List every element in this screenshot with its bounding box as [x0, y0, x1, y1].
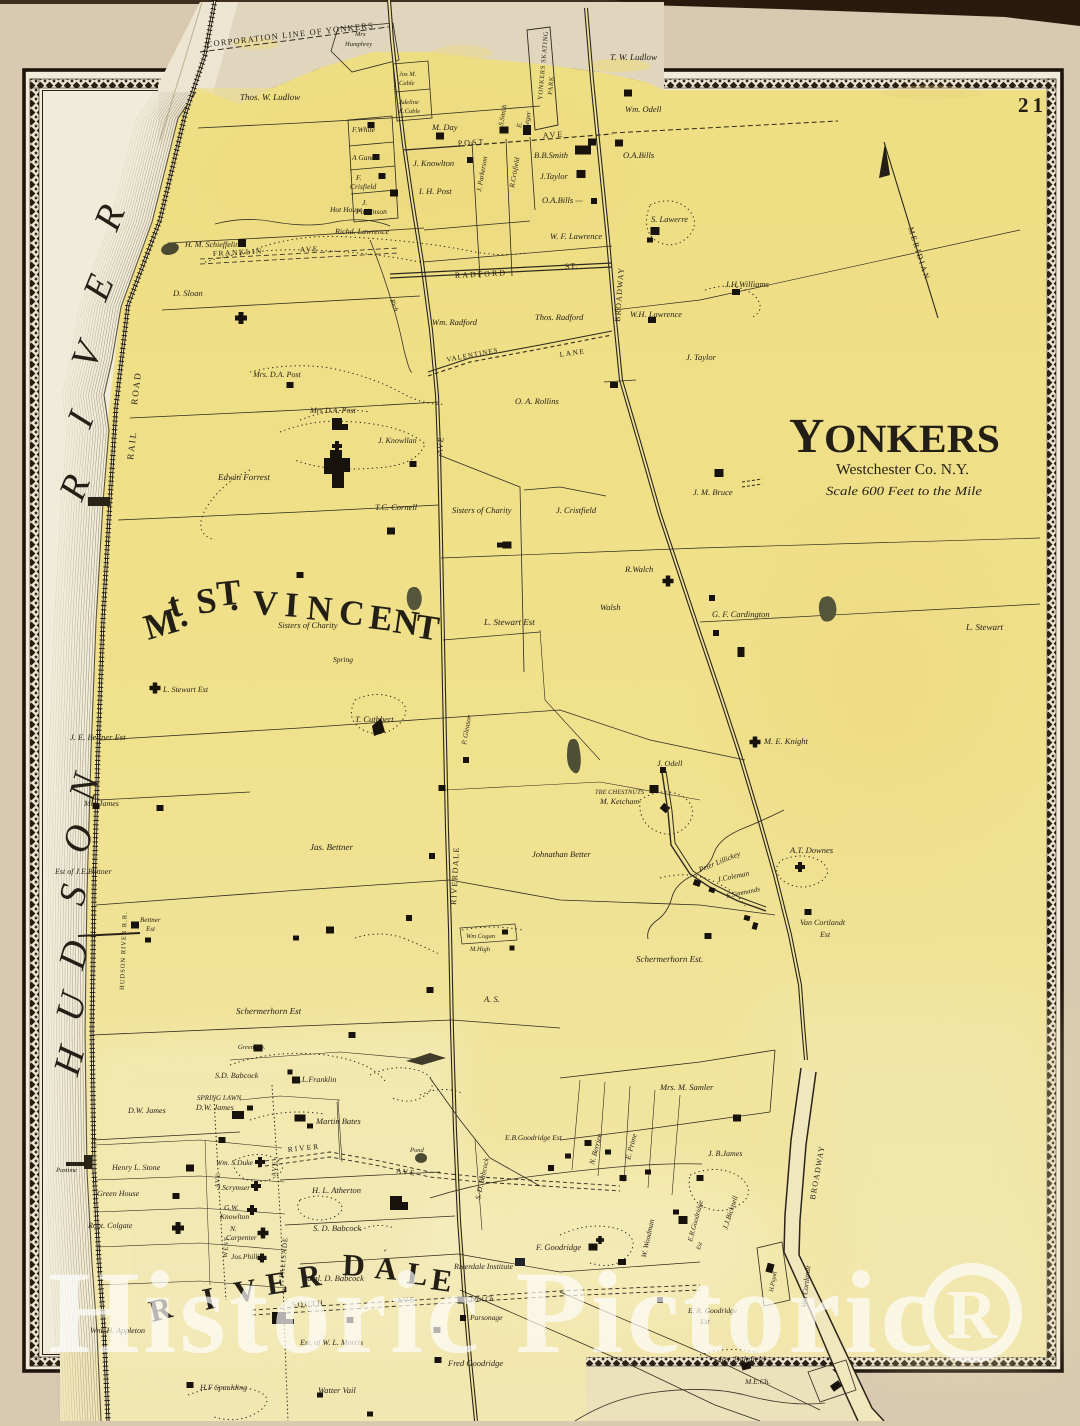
- svg-text:E: E: [367, 597, 395, 639]
- svg-text:Henry L. Stone: Henry L. Stone: [111, 1163, 161, 1172]
- svg-text:Adeline: Adeline: [398, 99, 419, 106]
- svg-text:Mrs. D.A. Post: Mrs. D.A. Post: [252, 370, 302, 379]
- svg-text:M.E.Ch.: M.E.Ch.: [744, 1377, 770, 1386]
- svg-text:Spring: Spring: [333, 655, 353, 664]
- svg-text:Green Ho.: Green Ho.: [238, 1044, 266, 1051]
- svg-text:Thos. W. Ludlow: Thos. W. Ludlow: [240, 92, 300, 102]
- svg-text:Schermerhorn Est: Schermerhorn Est: [236, 1006, 302, 1016]
- svg-text:Wm. Odell: Wm. Odell: [625, 104, 662, 114]
- svg-text:Historic Pictoric: Historic Pictoric: [48, 1247, 936, 1378]
- svg-text:Watter Vail: Watter Vail: [318, 1385, 356, 1395]
- svg-text:J. E. Bettner Est: J. E. Bettner Est: [70, 732, 126, 742]
- svg-text:D. Sloan: D. Sloan: [172, 288, 203, 298]
- svg-text:.: .: [230, 578, 239, 618]
- svg-text:Crisfield: Crisfield: [350, 182, 377, 191]
- svg-text:A Ganon: A Ganon: [351, 153, 379, 162]
- svg-text:H. L. Atherton: H. L. Atherton: [311, 1185, 361, 1195]
- svg-text:Wm Cogan: Wm Cogan: [466, 933, 495, 940]
- svg-text:T. Cuthbert: T. Cuthbert: [355, 714, 394, 724]
- svg-text:J. Knowlton: J. Knowlton: [413, 158, 454, 168]
- svg-text:J.H.Williams: J.H.Williams: [725, 279, 770, 289]
- svg-text:SPRING LAWN: SPRING LAWN: [197, 1094, 242, 1102]
- svg-text:M. E. Knight: M. E. Knight: [763, 736, 809, 746]
- svg-text:Wm. S.Duke: Wm. S.Duke: [216, 1158, 254, 1167]
- svg-text:O. A. Rollins: O. A. Rollins: [515, 396, 559, 406]
- svg-text:Sisters of Charity: Sisters of Charity: [452, 505, 512, 515]
- svg-text:.: .: [180, 594, 189, 634]
- svg-text:D.W. James: D.W. James: [195, 1103, 234, 1112]
- svg-text:S. D. Babcock: S. D. Babcock: [313, 1223, 361, 1233]
- svg-text:Knowlton: Knowlton: [219, 1212, 249, 1221]
- svg-text:G.W.: G.W.: [224, 1203, 239, 1212]
- svg-text:Est: Est: [819, 930, 831, 939]
- svg-text:AVE: AVE: [270, 1160, 279, 1177]
- svg-text:Mrs James: Mrs James: [83, 799, 119, 808]
- svg-text:Schermerhorn Est.: Schermerhorn Est.: [636, 954, 703, 964]
- svg-text:J. Cristfield: J. Cristfield: [556, 505, 597, 515]
- svg-text:Sisters of Charity: Sisters of Charity: [278, 620, 338, 630]
- svg-text:Robt. Colgate: Robt. Colgate: [87, 1221, 133, 1230]
- svg-text:Edwin Forrest: Edwin Forrest: [217, 472, 270, 482]
- svg-text:J.Scrymser: J.Scrymser: [217, 1183, 250, 1192]
- svg-text:Wm. Radford: Wm. Radford: [432, 317, 478, 327]
- svg-text:Mrs. M. Samler: Mrs. M. Samler: [659, 1082, 714, 1092]
- svg-text:Est of J.E.Bettner: Est of J.E.Bettner: [54, 867, 112, 876]
- svg-text:W.H. Lawrence: W.H. Lawrence: [630, 309, 682, 319]
- svg-text:Thos. Radford: Thos. Radford: [535, 312, 584, 322]
- svg-text:M. Day: M. Day: [431, 122, 458, 132]
- svg-text:G. F. Cardington: G. F. Cardington: [712, 609, 770, 619]
- svg-text:S.D. Babcock: S.D. Babcock: [215, 1071, 259, 1080]
- svg-text:J.Taylor: J.Taylor: [540, 171, 568, 181]
- svg-text:F.White: F.White: [351, 125, 376, 134]
- svg-text:AVE: AVE: [435, 436, 446, 455]
- svg-text:Bettner: Bettner: [140, 916, 161, 924]
- svg-text:AVE: AVE: [300, 244, 319, 254]
- svg-text:A. S.: A. S.: [483, 994, 500, 1004]
- svg-text:E.Cable: E.Cable: [398, 108, 420, 115]
- svg-text:N.: N.: [229, 1224, 237, 1233]
- svg-text:J. Taylor: J. Taylor: [686, 352, 717, 362]
- svg-text:Est: Est: [145, 925, 156, 933]
- svg-text:T. W. Ludlow: T. W. Ludlow: [610, 52, 657, 62]
- svg-text:Hot House: Hot House: [329, 205, 363, 214]
- svg-text:Mrs: Mrs: [354, 31, 366, 38]
- svg-text:D.W. James: D.W. James: [127, 1106, 166, 1115]
- svg-text:POST: POST: [458, 137, 486, 148]
- svg-text:TRE CHESTNUTS: TRE CHESTNUTS: [595, 789, 645, 796]
- svg-text:I: I: [283, 585, 299, 625]
- svg-text:Humphrey: Humphrey: [344, 41, 372, 48]
- svg-text:E.B.Goodridge Est: E.B.Goodridge Est: [504, 1133, 563, 1142]
- svg-text:M.High: M.High: [469, 946, 490, 953]
- svg-text:L. Stewart Est: L. Stewart Est: [162, 685, 209, 694]
- svg-text:O.A.Bills: O.A.Bills: [623, 150, 655, 160]
- svg-text:Jos M.: Jos M.: [399, 71, 417, 78]
- svg-text:Carpenter: Carpenter: [226, 1233, 257, 1242]
- svg-text:Richd. Lawrence: Richd. Lawrence: [334, 227, 389, 236]
- svg-text:B.B.Smith: B.B.Smith: [534, 150, 568, 160]
- svg-text:J. Knowllan: J. Knowllan: [378, 436, 417, 445]
- svg-text:21: 21: [1018, 93, 1047, 117]
- svg-text:Cable: Cable: [399, 80, 415, 87]
- svg-text:H. M. Schieffelin: H. M. Schieffelin: [184, 240, 239, 249]
- svg-text:AVE: AVE: [543, 130, 565, 140]
- svg-text:J. B.James: J. B.James: [708, 1149, 742, 1158]
- svg-text:Scale 600 Feet to the Mile: Scale 600 Feet to the Mile: [826, 484, 983, 498]
- svg-text:O.A.Bills —: O.A.Bills —: [542, 195, 583, 205]
- svg-text:V: V: [252, 583, 279, 623]
- svg-text:J. M. Bruce: J. M. Bruce: [693, 487, 733, 497]
- svg-text:H.F Spaulding: H.F Spaulding: [199, 1383, 247, 1392]
- svg-text:R.L.Franklin: R.L.Franklin: [294, 1075, 336, 1084]
- svg-text:Pastime: Pastime: [55, 1167, 77, 1174]
- svg-text:T.C. Cornell: T.C. Cornell: [375, 502, 418, 512]
- svg-text:C: C: [337, 592, 366, 633]
- svg-text:ST.: ST.: [565, 261, 579, 271]
- svg-text:Johnathan Better: Johnathan Better: [532, 849, 591, 859]
- svg-text:Westchester Co. N.Y.: Westchester Co. N.Y.: [836, 462, 969, 478]
- svg-text:W. F. Lawrence: W. F. Lawrence: [550, 231, 602, 241]
- svg-text:F.: F.: [355, 173, 362, 182]
- svg-text:Green House: Green House: [97, 1189, 140, 1198]
- svg-text:ONKERS: ONKERS: [824, 416, 1000, 461]
- svg-text:L. Stewart Est: L. Stewart Est: [483, 617, 535, 627]
- svg-text:Jas. Bettner: Jas. Bettner: [310, 842, 353, 852]
- svg-text:R.Walch: R.Walch: [624, 564, 653, 574]
- svg-text:J. Odell: J. Odell: [657, 759, 683, 768]
- svg-text:A.T. Downes: A.T. Downes: [789, 845, 834, 855]
- svg-text:Van Cortlandt: Van Cortlandt: [800, 918, 846, 927]
- svg-text:Pond: Pond: [409, 1147, 424, 1154]
- svg-text:Walsh: Walsh: [600, 602, 620, 612]
- svg-text:Mrs D.A. Post: Mrs D.A. Post: [309, 406, 357, 415]
- svg-text:I. H. Post: I. H. Post: [418, 186, 452, 196]
- svg-text:R: R: [947, 1277, 999, 1354]
- svg-text:Martin Bates: Martin Bates: [315, 1116, 361, 1126]
- svg-text:L. Stewart: L. Stewart: [965, 622, 1004, 632]
- svg-text:S. Lawerre: S. Lawerre: [651, 214, 688, 224]
- svg-text:M. Ketcham: M. Ketcham: [599, 797, 639, 806]
- svg-text:Y: Y: [789, 408, 824, 463]
- svg-text:J.: J.: [362, 198, 367, 207]
